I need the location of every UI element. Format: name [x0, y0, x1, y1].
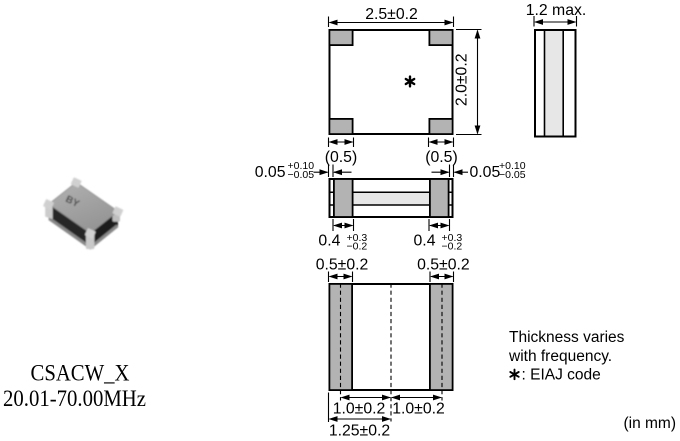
svg-text:CSACW_X: CSACW_X	[31, 360, 130, 385]
svg-text:2.5±0.2: 2.5±0.2	[365, 6, 418, 23]
svg-text:0.05: 0.05	[470, 164, 501, 181]
svg-text:20.01-70.00MHz: 20.01-70.00MHz	[3, 386, 146, 411]
svg-text:0.5±0.2: 0.5±0.2	[417, 256, 470, 273]
svg-text:(0.5): (0.5)	[425, 149, 457, 166]
svg-text:2.0±0.2: 2.0±0.2	[454, 54, 471, 107]
svg-text:−0.05: −0.05	[499, 169, 526, 181]
svg-text:0.4: 0.4	[414, 233, 436, 250]
svg-text:: EIAJ code: : EIAJ code	[522, 367, 601, 384]
svg-text:−0.2: −0.2	[442, 241, 463, 253]
svg-text:1.2 max.: 1.2 max.	[526, 2, 587, 19]
svg-text:0.05: 0.05	[255, 164, 286, 181]
svg-text:1.0±0.2: 1.0±0.2	[333, 401, 386, 418]
svg-text:1.25±0.2: 1.25±0.2	[329, 423, 390, 440]
svg-text:1.0±0.2: 1.0±0.2	[392, 401, 445, 418]
svg-text:with frequency.: with frequency.	[508, 348, 612, 365]
svg-text:(in mm): (in mm)	[623, 415, 676, 432]
svg-text:−0.2: −0.2	[347, 241, 368, 253]
svg-text:Thickness varies: Thickness varies	[509, 329, 625, 346]
svg-text:(0.5): (0.5)	[325, 149, 357, 166]
svg-text:−0.05: −0.05	[288, 169, 315, 181]
svg-text:0.4: 0.4	[318, 233, 340, 250]
svg-text:0.5±0.2: 0.5±0.2	[316, 256, 369, 273]
